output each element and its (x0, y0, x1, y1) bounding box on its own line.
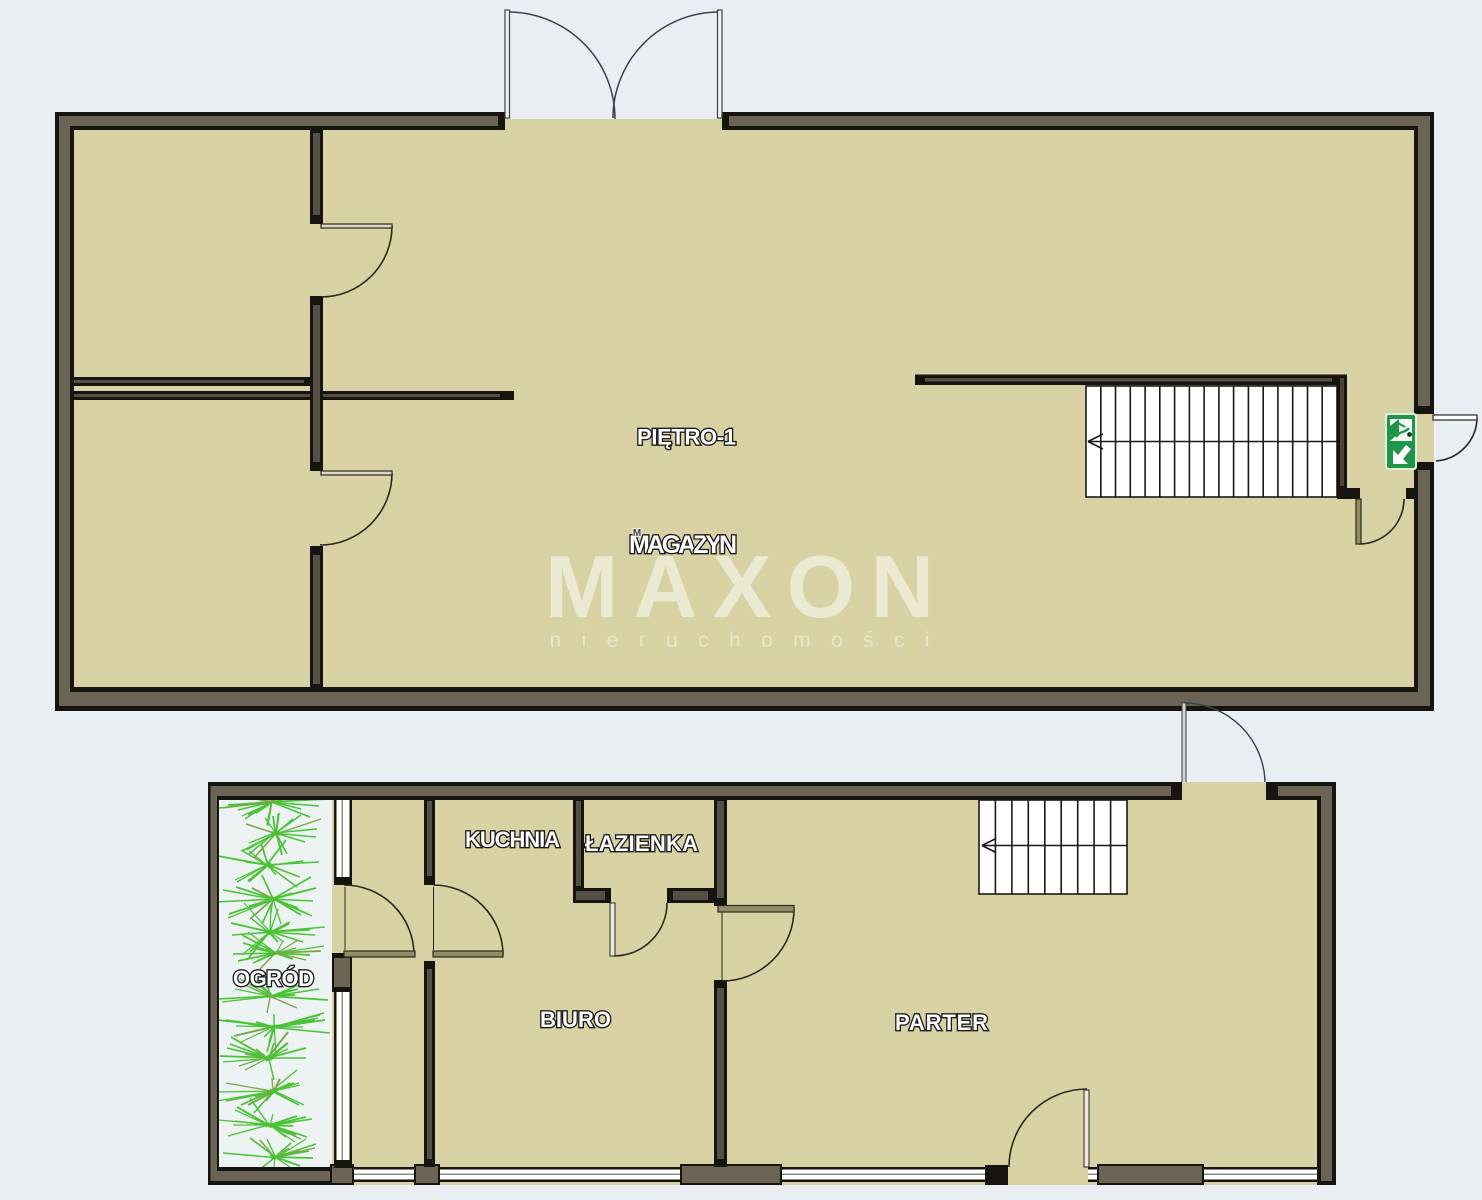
svg-text:OGRÓD: OGRÓD (233, 966, 314, 991)
svg-text:KUCHNIA: KUCHNIA (465, 827, 560, 852)
svg-text:PARTER: PARTER (895, 1010, 988, 1035)
svg-text:MAGAZYN: MAGAZYN (629, 531, 737, 559)
svg-text:MAXON: MAXON (545, 537, 934, 636)
svg-text:PIĘTRO-1: PIĘTRO-1 (637, 425, 736, 450)
svg-text:nieruchomości: nieruchomości (550, 629, 930, 652)
svg-text:BIURO: BIURO (540, 1007, 611, 1032)
svg-text:M: M (633, 528, 641, 539)
svg-text:ŁAZIENKA: ŁAZIENKA (585, 831, 698, 856)
